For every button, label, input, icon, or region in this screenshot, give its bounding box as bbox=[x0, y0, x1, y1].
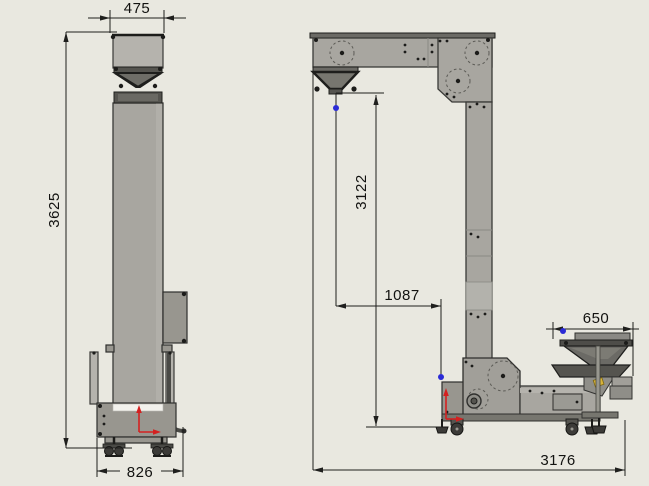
flange-tab-right bbox=[162, 345, 172, 352]
hopper-side-step bbox=[610, 386, 632, 399]
hopper-foot-pad bbox=[592, 426, 606, 433]
hopper-stand-base bbox=[582, 412, 618, 418]
hopper-flare bbox=[552, 365, 630, 377]
hopper-side-shelf bbox=[612, 377, 632, 386]
pulley-axle-2 bbox=[475, 51, 479, 55]
elevator-column-front bbox=[113, 103, 163, 404]
dim-top-width-label: 475 bbox=[124, 0, 151, 17]
dim-overall-length-label: 3176 bbox=[540, 452, 575, 469]
flange-tab-left bbox=[106, 345, 114, 352]
vertical-column-side bbox=[466, 102, 492, 360]
column-panel bbox=[466, 282, 492, 310]
reference-point-hopper bbox=[560, 328, 566, 334]
pulley-axle-1 bbox=[340, 51, 344, 55]
drive-axle bbox=[501, 374, 505, 378]
side-access-box bbox=[163, 292, 187, 343]
dim-overall-height-label: 3625 bbox=[46, 192, 63, 227]
pipe-end-cap bbox=[182, 429, 187, 434]
hopper-back-plate bbox=[575, 333, 630, 340]
reference-point-boot bbox=[438, 374, 444, 380]
hopper-stand-post bbox=[596, 346, 600, 414]
support-post-left bbox=[90, 352, 98, 404]
drawing-canvas: 475 3625 826 bbox=[0, 0, 649, 486]
dim-inlet-offset-label: 1087 bbox=[384, 287, 419, 304]
hopper-rim bbox=[560, 340, 632, 346]
motor-hub bbox=[471, 398, 477, 404]
caster-rear bbox=[566, 419, 578, 435]
dim-feed-hopper-width-label: 650 bbox=[583, 310, 610, 327]
discharge-band-inner bbox=[118, 94, 158, 101]
dim-base-width-label: 826 bbox=[127, 464, 154, 481]
elevator-head-box bbox=[113, 35, 163, 68]
reference-point-discharge bbox=[333, 105, 339, 111]
column-highlight bbox=[156, 103, 162, 403]
dim-discharge-height-label: 3122 bbox=[353, 174, 370, 209]
arm-top-plate bbox=[310, 33, 495, 38]
corner-housing bbox=[438, 38, 492, 102]
pulley-axle-3 bbox=[456, 79, 460, 83]
technical-drawing: 475 3625 826 bbox=[0, 0, 649, 486]
